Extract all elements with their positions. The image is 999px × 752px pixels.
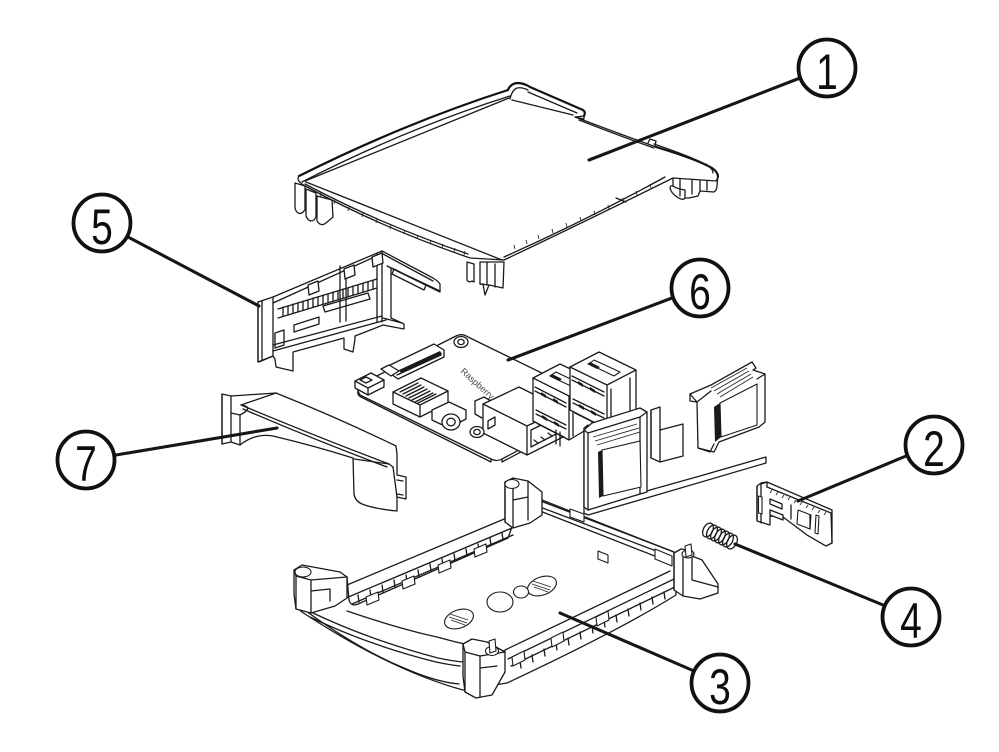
- svg-text:5: 5: [91, 198, 113, 255]
- svg-text:4: 4: [900, 592, 922, 649]
- svg-text:1: 1: [816, 43, 838, 100]
- svg-text:2: 2: [923, 420, 945, 477]
- svg-text:6: 6: [689, 263, 711, 320]
- svg-text:7: 7: [75, 435, 97, 492]
- svg-text:3: 3: [709, 658, 731, 715]
